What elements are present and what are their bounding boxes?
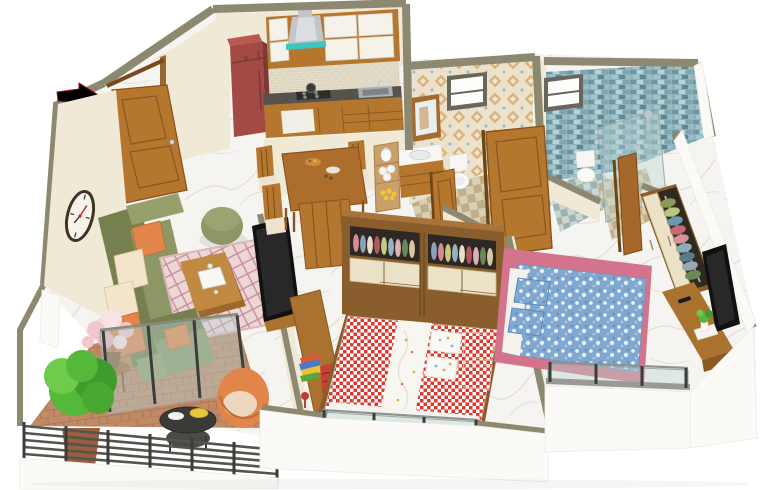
books [299,353,323,382]
apartment-render [0,0,780,490]
cooking-pan [306,83,315,92]
shower-knob [636,146,641,151]
door-handle [170,140,175,145]
snack-plate [168,412,184,420]
shower-head [644,110,652,118]
appliance-front [281,109,315,134]
red-checker-pillow [463,332,494,360]
planter-wall [40,290,60,348]
ground-shadow [30,479,750,489]
wall-caps-left-lower [20,284,44,426]
master-wardrobe [342,210,504,330]
bathroom1-mirror [411,94,441,142]
serving-plate [326,167,340,174]
refrigerator [227,34,271,137]
bedroom2-parapet [545,386,690,452]
floor-plan-screenshot [0,0,780,490]
niche-shelf [374,142,400,212]
fruit-bowl [305,158,321,166]
table-top [160,407,216,433]
bathroom2-window [544,74,583,112]
bathroom2-toilet [576,150,595,182]
bathroom1-window [447,72,487,111]
shower-knob [644,144,649,149]
red-checker-pillow [461,362,492,390]
chips-bowl [190,408,208,417]
